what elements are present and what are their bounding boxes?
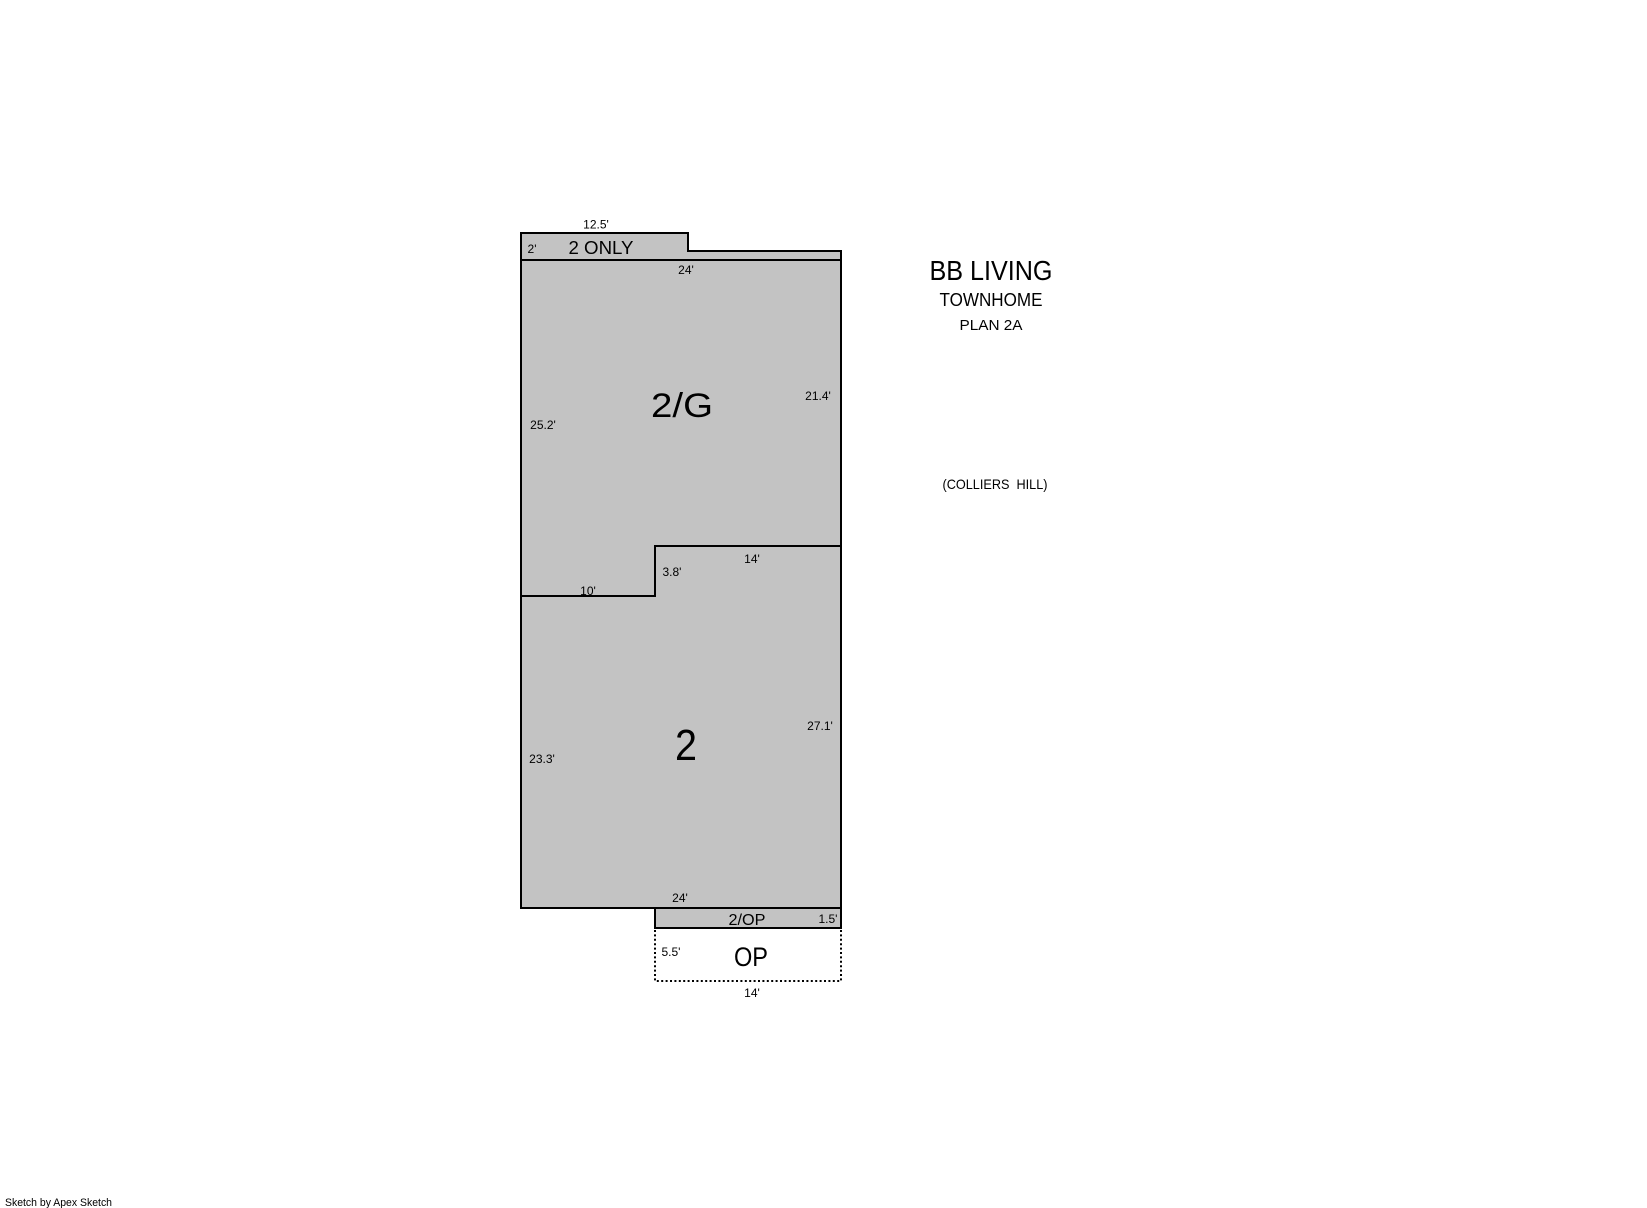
- svg-text:14': 14': [744, 986, 760, 1000]
- svg-text:5.5': 5.5': [662, 945, 681, 959]
- svg-text:Sketch by Apex Sketch: Sketch by Apex Sketch: [5, 1197, 112, 1208]
- svg-text:25.2': 25.2': [530, 418, 556, 432]
- svg-text:2 ONLY: 2 ONLY: [569, 238, 634, 258]
- svg-text:12.5': 12.5': [583, 218, 609, 232]
- svg-text:2/G: 2/G: [651, 387, 713, 425]
- svg-text:PLAN 2A: PLAN 2A: [960, 317, 1023, 334]
- svg-text:24': 24': [678, 263, 694, 277]
- svg-text:1.5': 1.5': [819, 912, 838, 926]
- svg-text:14': 14': [744, 552, 760, 566]
- svg-text:23.3': 23.3': [529, 752, 555, 766]
- svg-text:10': 10': [580, 584, 596, 598]
- svg-text:2': 2': [528, 242, 537, 256]
- svg-text:27.1': 27.1': [807, 719, 833, 733]
- svg-text:BB LIVING: BB LIVING: [930, 255, 1053, 286]
- svg-text:2/OP: 2/OP: [729, 912, 766, 929]
- svg-text:(COLLIERS HILL): (COLLIERS HILL): [943, 476, 1048, 492]
- svg-text:21.4': 21.4': [805, 389, 831, 403]
- svg-text:2: 2: [675, 721, 697, 770]
- svg-text:24': 24': [672, 891, 688, 905]
- svg-text:OP: OP: [734, 942, 768, 972]
- svg-text:TOWNHOME: TOWNHOME: [940, 290, 1043, 310]
- svg-text:3.8': 3.8': [663, 565, 682, 579]
